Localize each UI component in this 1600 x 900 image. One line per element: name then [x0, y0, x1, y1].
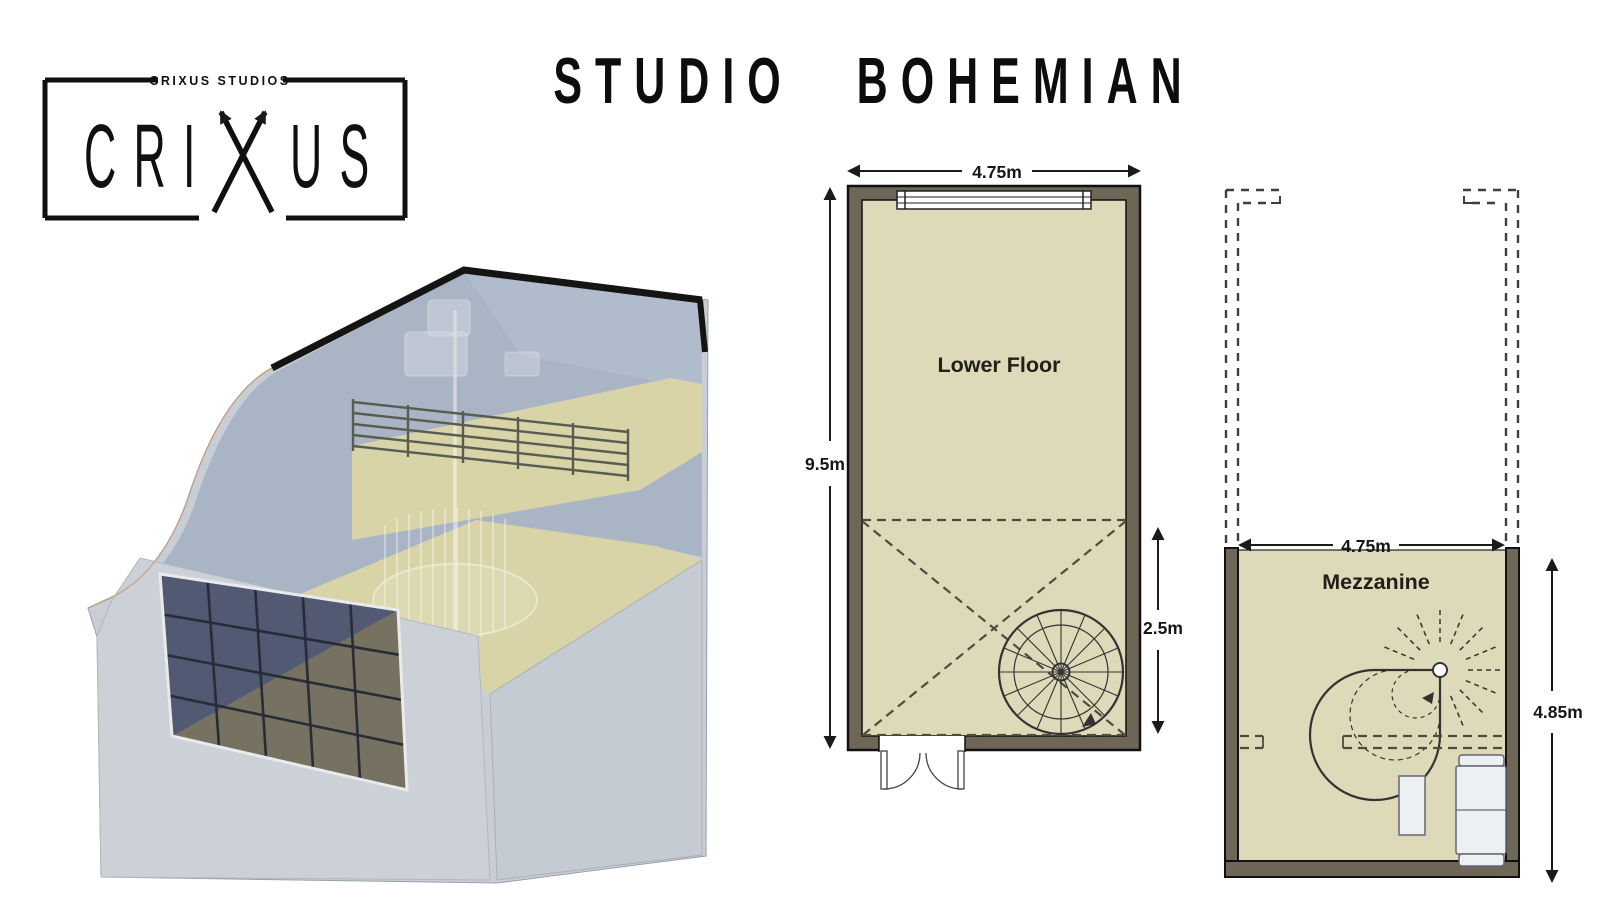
ghost-stool — [505, 352, 539, 376]
svg-text:4.75m: 4.75m — [972, 162, 1022, 182]
entrance-door — [879, 736, 965, 789]
dim-lower-width: 4.75m — [849, 162, 1139, 182]
plan-floor-area — [862, 200, 1126, 736]
wall-right — [1506, 548, 1519, 877]
lower-floor-label: Lower Floor — [937, 353, 1061, 377]
brand-text-right: US — [290, 107, 387, 207]
wall-left — [1225, 548, 1238, 877]
svg-text:9.5m: 9.5m — [805, 454, 845, 474]
ghost-chair — [428, 300, 470, 336]
svg-text:2.5m: 2.5m — [1143, 618, 1183, 638]
dim-mezzanine-void: 2.5m — [1143, 529, 1183, 732]
lower-floor-plan: Lower Floor 4.75m 9.5m 2.5m — [805, 162, 1183, 789]
studio-bohemian-flyer: CRIXUS STUDIOS CRI US STUDIO BOHEMIAN — [0, 0, 1600, 900]
mezzanine-floor-plan: Mezzanine 4.75m 4.85m — [1225, 190, 1583, 881]
brand-text-left: CRI — [84, 107, 213, 207]
logo-tagline: CRIXUS STUDIOS — [149, 74, 290, 88]
sofa — [1456, 755, 1506, 866]
flyer-canvas: CRIXUS STUDIOS CRI US STUDIO BOHEMIAN — [0, 0, 1600, 900]
mezzanine-label: Mezzanine — [1322, 570, 1430, 594]
dim-mezzanine-depth: 4.85m — [1533, 560, 1583, 881]
spiral-staircase — [999, 610, 1123, 734]
studio-3d-render — [88, 268, 708, 883]
void-outline-dashed — [1226, 190, 1518, 548]
svg-text:4.75m: 4.75m — [1341, 536, 1391, 556]
side-table — [1399, 776, 1425, 835]
ghost-desk — [405, 332, 467, 376]
crossed-arrows-icon — [214, 112, 272, 212]
dim-lower-depth: 9.5m — [805, 189, 845, 747]
window-symbol — [897, 191, 1091, 209]
svg-text:4.85m: 4.85m — [1533, 702, 1583, 722]
page-title: STUDIO BOHEMIAN — [553, 44, 1194, 117]
crixus-logo: CRIXUS STUDIOS CRI US — [45, 74, 405, 218]
